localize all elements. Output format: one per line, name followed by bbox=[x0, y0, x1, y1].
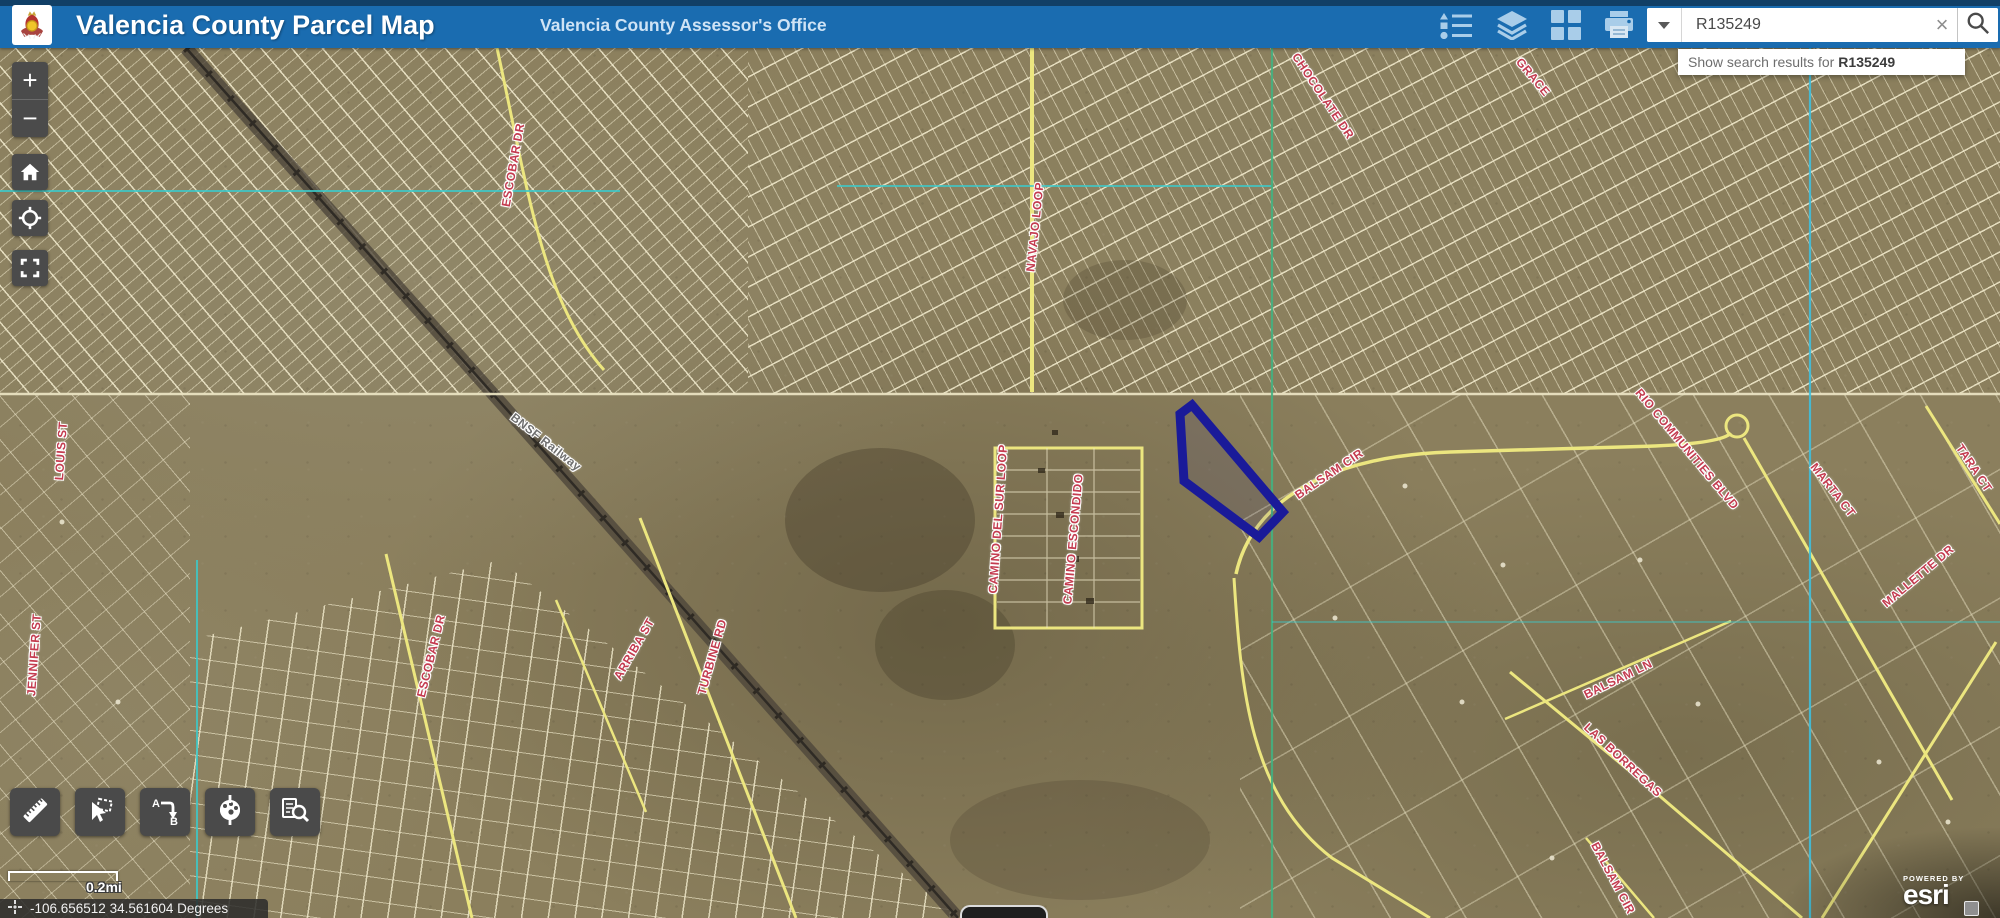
parcel-grid-north bbox=[748, 48, 2000, 394]
zoom-out-button[interactable]: − bbox=[12, 100, 48, 137]
search-source-dropdown[interactable] bbox=[1647, 8, 1682, 42]
locate-icon bbox=[12, 200, 48, 236]
search-button[interactable] bbox=[1957, 8, 1998, 42]
locate-button[interactable] bbox=[12, 200, 48, 236]
parcel-grid-northwest bbox=[0, 48, 748, 394]
zoom-in-button[interactable]: + bbox=[12, 62, 48, 100]
document-search-icon bbox=[280, 795, 310, 830]
suggestion-term: R135249 bbox=[1838, 54, 1895, 70]
parcel-grid-west bbox=[0, 394, 190, 918]
county-seal-logo bbox=[12, 5, 52, 45]
legend-widget-button[interactable] bbox=[1438, 9, 1474, 41]
app-subtitle: Valencia County Assessor's Office bbox=[540, 0, 827, 48]
home-extent-button[interactable] bbox=[12, 154, 48, 190]
crosshair-icon[interactable] bbox=[8, 900, 22, 917]
svg-text:B: B bbox=[170, 816, 178, 825]
coordinates-bar: -106.656512 34.561604 Degrees bbox=[0, 899, 268, 918]
measure-tool-button[interactable] bbox=[10, 788, 60, 836]
home-icon bbox=[12, 154, 48, 190]
draw-tool-button[interactable] bbox=[205, 788, 255, 836]
zoom-control: + − bbox=[12, 62, 48, 137]
esri-attribution: POWERED BY esri bbox=[1903, 874, 1964, 907]
default-extent-button[interactable] bbox=[12, 250, 48, 286]
scale-bar-label: 0.2mi bbox=[86, 879, 122, 895]
esri-logo: esri bbox=[1903, 883, 1964, 907]
basemap-gallery-button[interactable] bbox=[1548, 9, 1584, 41]
select-cursor-icon bbox=[86, 796, 114, 829]
attribution-toggle[interactable] bbox=[1964, 901, 1979, 916]
fullscreen-icon bbox=[12, 250, 48, 286]
plus-icon: + bbox=[22, 65, 37, 96]
layers-widget-button[interactable] bbox=[1494, 9, 1530, 41]
directions-tool-button[interactable]: A B bbox=[140, 788, 190, 836]
coordinates-readout: -106.656512 34.561604 Degrees bbox=[30, 901, 228, 916]
attribution-collapse-tab[interactable] bbox=[960, 905, 1048, 918]
layers-icon bbox=[1496, 10, 1528, 40]
basemap-grid-icon bbox=[1551, 10, 1581, 40]
palette-icon bbox=[215, 795, 245, 830]
chevron-down-icon bbox=[1658, 22, 1670, 29]
search-icon bbox=[1966, 11, 1990, 40]
minus-icon: − bbox=[22, 103, 37, 134]
app-header: Valencia County Parcel Map Valencia Coun… bbox=[0, 0, 2000, 48]
print-widget-button[interactable] bbox=[1601, 9, 1637, 41]
svg-text:A: A bbox=[152, 798, 160, 810]
app-title: Valencia County Parcel Map bbox=[76, 0, 435, 48]
attribute-search-tool-button[interactable] bbox=[270, 788, 320, 836]
a-to-b-route-icon: A B bbox=[150, 795, 180, 830]
search-group: × bbox=[1647, 8, 1998, 42]
clear-search-icon[interactable]: × bbox=[1927, 8, 1957, 42]
select-tool-button[interactable] bbox=[75, 788, 125, 836]
parcel-map-app: ESCOBAR DRNAVAJO LOOPCHOCOLATE DRGRACEBN… bbox=[0, 0, 2000, 918]
search-input[interactable] bbox=[1682, 8, 1927, 42]
ruler-icon bbox=[20, 795, 50, 830]
print-icon bbox=[1603, 10, 1635, 40]
legend-icon bbox=[1440, 11, 1472, 39]
suggestion-text: Show search results for bbox=[1688, 54, 1834, 70]
map-canvas[interactable]: ESCOBAR DRNAVAJO LOOPCHOCOLATE DRGRACEBN… bbox=[0, 0, 2000, 918]
search-suggestion-item[interactable]: Show search results for R135249 bbox=[1678, 49, 1965, 75]
